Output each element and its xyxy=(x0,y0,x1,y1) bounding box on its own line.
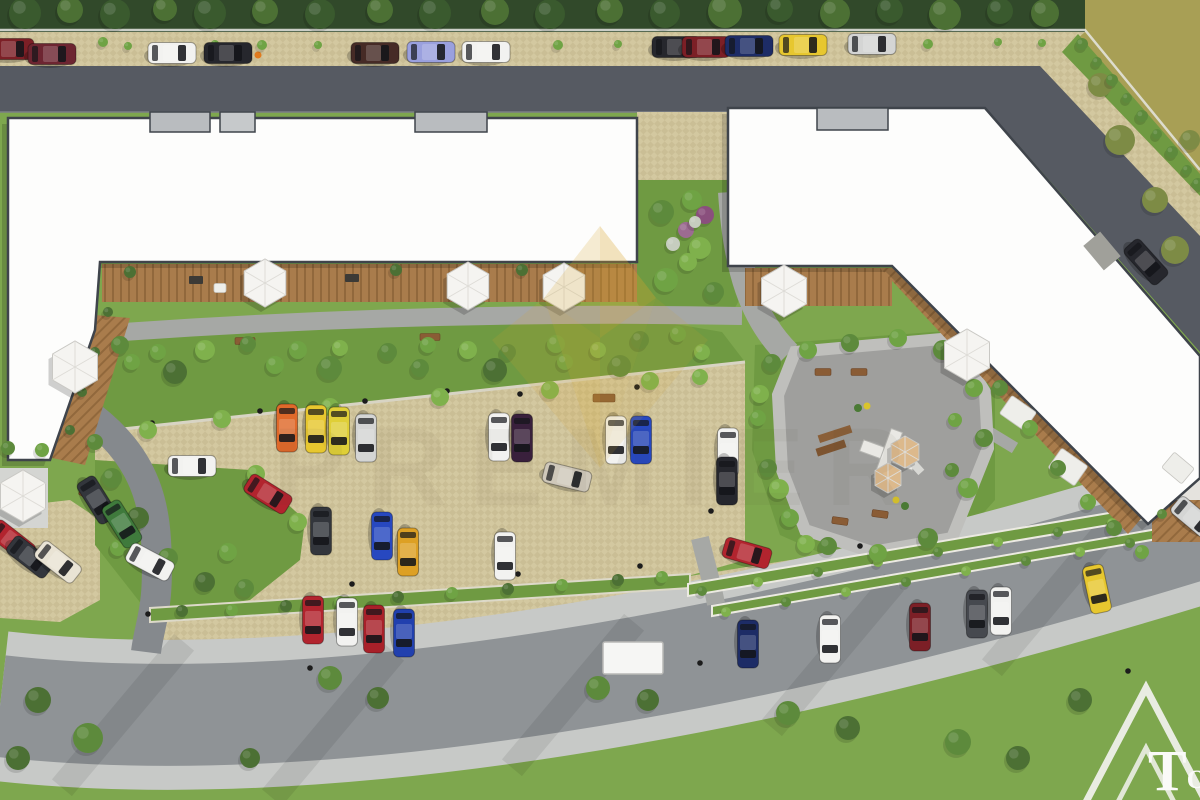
tree xyxy=(689,216,701,228)
tree-highlight xyxy=(994,382,1000,388)
deck-seating xyxy=(214,284,226,293)
tree xyxy=(813,567,823,577)
tree-highlight xyxy=(321,359,331,369)
tree xyxy=(1161,236,1189,264)
tree xyxy=(280,600,292,612)
tree-highlight xyxy=(243,751,251,759)
tree-highlight xyxy=(242,338,248,344)
tree-highlight xyxy=(779,704,789,714)
tree xyxy=(1,441,15,455)
deck-table xyxy=(189,276,203,284)
tree-highlight xyxy=(681,255,688,262)
tree-highlight xyxy=(668,239,674,245)
car xyxy=(775,35,827,60)
bench xyxy=(815,369,831,376)
tree xyxy=(65,425,75,435)
bollard xyxy=(1125,668,1131,674)
tree xyxy=(819,537,837,555)
tree-highlight xyxy=(990,1,1000,11)
tree-highlight xyxy=(994,538,998,542)
tree xyxy=(961,566,971,576)
tree xyxy=(420,337,436,353)
tree-highlight xyxy=(1054,528,1058,532)
tree-highlight xyxy=(215,412,222,419)
tree xyxy=(1182,165,1192,175)
tree-highlight xyxy=(518,266,523,271)
between-buildings-paver xyxy=(637,112,729,184)
tree-highlight xyxy=(125,43,128,46)
tree-highlight xyxy=(1078,40,1083,45)
tree xyxy=(124,266,136,278)
tree-highlight xyxy=(1108,522,1114,528)
tree xyxy=(98,37,108,47)
tree-highlight xyxy=(126,356,132,362)
tree xyxy=(1106,520,1122,536)
tree xyxy=(318,666,342,690)
tree xyxy=(87,434,103,450)
tree-highlight xyxy=(413,361,420,368)
tree-highlight xyxy=(1183,133,1191,141)
car xyxy=(906,599,931,651)
tree xyxy=(781,597,791,607)
tree xyxy=(1166,146,1178,158)
tree-highlight xyxy=(1071,691,1081,701)
tree xyxy=(1106,74,1118,86)
car xyxy=(491,528,516,580)
tree xyxy=(1180,130,1200,150)
tree-highlight xyxy=(99,38,103,42)
car xyxy=(987,583,1012,635)
tree-highlight xyxy=(995,39,998,42)
bollard xyxy=(257,408,263,414)
tree xyxy=(692,369,708,385)
tree-highlight xyxy=(1137,547,1143,553)
tree xyxy=(535,0,565,29)
tree xyxy=(1021,556,1031,566)
tree xyxy=(993,537,1003,547)
tree-highlight xyxy=(948,732,958,742)
tree-highlight xyxy=(658,573,663,578)
tree xyxy=(289,341,307,359)
car xyxy=(403,42,455,67)
tree-highlight xyxy=(653,203,663,213)
tree xyxy=(73,723,103,753)
tree xyxy=(763,354,781,372)
tree-highlight xyxy=(962,567,966,571)
bollard xyxy=(515,571,521,577)
tree-highlight xyxy=(1183,166,1187,170)
tree-highlight xyxy=(722,608,726,612)
tree xyxy=(176,605,188,617)
tree-highlight xyxy=(291,343,298,350)
tree-highlight xyxy=(698,587,702,591)
tree-highlight xyxy=(1145,190,1155,200)
tree-highlight xyxy=(821,539,828,546)
tree-highlight xyxy=(842,588,846,592)
tree-highlight xyxy=(315,42,318,45)
tree xyxy=(1075,547,1085,557)
tree xyxy=(923,39,933,49)
bollard xyxy=(349,581,355,587)
tree xyxy=(163,360,187,384)
tree xyxy=(666,237,680,251)
car xyxy=(333,594,358,646)
tree xyxy=(1125,538,1135,548)
tree xyxy=(1031,0,1059,27)
tree xyxy=(1022,420,1038,436)
tree-highlight xyxy=(1138,112,1143,117)
tree xyxy=(556,579,568,591)
tree-highlight xyxy=(321,669,331,679)
bollard xyxy=(362,398,368,404)
tree-highlight xyxy=(707,285,715,293)
tree xyxy=(1105,125,1135,155)
site-plan-render: PREMIER TOP xyxy=(0,0,1200,800)
tree-highlight xyxy=(934,548,938,552)
tree-highlight xyxy=(692,240,701,249)
tree xyxy=(992,380,1008,396)
tree xyxy=(1136,110,1148,122)
tree-highlight xyxy=(249,467,256,474)
tree xyxy=(102,468,122,488)
tree xyxy=(103,307,113,317)
tree xyxy=(1038,39,1046,47)
tree-highlight xyxy=(1108,76,1113,81)
tree xyxy=(35,443,49,457)
tree-highlight xyxy=(1123,94,1127,98)
tree-highlight xyxy=(615,41,618,44)
tree-highlight xyxy=(753,387,760,394)
tree-highlight xyxy=(1076,548,1080,552)
tree-highlight xyxy=(1022,557,1026,561)
bollard xyxy=(697,660,703,666)
car xyxy=(734,616,759,668)
tree xyxy=(367,687,389,709)
tree xyxy=(1122,93,1132,103)
tree-highlight xyxy=(558,581,563,586)
tree xyxy=(318,356,342,380)
tree-highlight xyxy=(1126,539,1130,543)
tree xyxy=(240,336,256,352)
tree-highlight xyxy=(13,1,26,14)
tree-highlight xyxy=(694,371,700,377)
tree xyxy=(586,676,610,700)
tree xyxy=(948,413,962,427)
tree-highlight xyxy=(238,581,245,588)
deck-table xyxy=(345,274,359,282)
tree xyxy=(1006,746,1030,770)
tree-highlight xyxy=(691,218,696,223)
tree-highlight xyxy=(60,0,70,10)
tree-highlight xyxy=(461,343,468,350)
tree-highlight xyxy=(924,40,928,44)
tree-highlight xyxy=(880,0,890,10)
tree xyxy=(240,748,260,768)
tree-highlight xyxy=(657,271,667,281)
car xyxy=(394,524,419,576)
tree-highlight xyxy=(485,1,496,12)
tree-highlight xyxy=(370,690,379,699)
tree xyxy=(305,0,335,29)
tree xyxy=(1050,460,1066,476)
tree xyxy=(721,607,731,617)
tree-highlight xyxy=(105,471,113,479)
tree xyxy=(411,359,429,377)
tree-highlight xyxy=(141,423,148,430)
tree xyxy=(124,354,140,370)
tree-highlight xyxy=(9,749,19,759)
tree-highlight xyxy=(1153,130,1157,134)
tree-highlight xyxy=(685,193,693,201)
car xyxy=(390,605,415,657)
tree-highlight xyxy=(1168,148,1173,153)
tree-highlight xyxy=(1035,3,1046,14)
tree-highlight xyxy=(113,338,120,345)
tree-highlight xyxy=(130,510,139,519)
tree xyxy=(1053,527,1063,537)
tree-highlight xyxy=(66,426,70,430)
tree-highlight xyxy=(258,41,262,45)
tree xyxy=(111,336,129,354)
tree xyxy=(266,356,284,374)
tree xyxy=(1142,187,1168,213)
tree-highlight xyxy=(504,585,509,590)
tree-highlight xyxy=(309,3,321,15)
tree xyxy=(1076,38,1088,50)
tree-highlight xyxy=(37,445,43,451)
scene-svg: PREMIER TOP xyxy=(0,0,1200,800)
tree xyxy=(751,385,769,403)
tree xyxy=(945,463,959,477)
tree xyxy=(682,190,702,210)
tree xyxy=(841,587,851,597)
tree-highlight xyxy=(950,415,956,421)
tree-highlight xyxy=(394,593,399,598)
tree-highlight xyxy=(871,546,878,553)
tree-highlight xyxy=(640,692,649,701)
car xyxy=(200,43,252,68)
car xyxy=(164,456,216,481)
tree xyxy=(431,388,449,406)
tree-highlight xyxy=(1093,58,1097,62)
tree xyxy=(1135,545,1149,559)
tree xyxy=(776,701,800,725)
tree-highlight xyxy=(77,727,89,739)
tree-highlight xyxy=(961,481,969,489)
tree xyxy=(918,528,938,548)
tree-highlight xyxy=(433,390,440,397)
tree xyxy=(612,574,624,586)
tree-highlight xyxy=(178,607,183,612)
tree xyxy=(1092,57,1102,67)
tree xyxy=(614,40,622,48)
tree-highlight xyxy=(843,336,850,343)
right-building-notch xyxy=(817,108,888,130)
tree xyxy=(1068,688,1092,712)
tree-highlight xyxy=(486,361,496,371)
tree-highlight xyxy=(554,41,558,45)
tree xyxy=(195,340,215,360)
tree-highlight xyxy=(539,3,551,15)
tree xyxy=(213,410,231,428)
tree xyxy=(753,577,763,587)
tree-highlight xyxy=(282,602,287,607)
car xyxy=(844,34,896,59)
bollard xyxy=(517,391,523,397)
tree-highlight xyxy=(801,343,808,350)
tree-highlight xyxy=(198,343,206,351)
tree-highlight xyxy=(600,0,610,10)
tree xyxy=(459,341,477,359)
left-building-notch-1 xyxy=(150,112,210,132)
tree-highlight xyxy=(1194,180,1199,185)
tree-highlight xyxy=(1052,462,1058,468)
tree xyxy=(25,687,51,713)
tree xyxy=(637,689,659,711)
tree xyxy=(390,264,402,276)
tree-highlight xyxy=(152,346,158,352)
tree-highlight xyxy=(933,2,946,15)
car xyxy=(144,43,196,68)
tree-highlight xyxy=(334,342,340,348)
tree-highlight xyxy=(1165,240,1176,251)
tree-highlight xyxy=(921,531,929,539)
car xyxy=(963,586,988,638)
tree-highlight xyxy=(228,606,233,611)
tree-highlight xyxy=(370,0,380,10)
tree xyxy=(799,341,817,359)
tree-highlight xyxy=(589,679,599,689)
tree xyxy=(379,343,397,361)
bollard xyxy=(637,563,643,569)
tree xyxy=(654,268,678,292)
left-building-notch-2 xyxy=(220,112,255,132)
tree xyxy=(656,571,668,583)
tree-highlight xyxy=(89,436,95,442)
tree-highlight xyxy=(28,690,38,700)
tree-highlight xyxy=(422,339,428,345)
tree xyxy=(1080,494,1096,510)
tree xyxy=(836,716,860,740)
car xyxy=(360,601,385,653)
tree-highlight xyxy=(166,363,176,373)
tree-highlight xyxy=(126,268,131,273)
tree xyxy=(1152,129,1162,139)
tree xyxy=(314,41,322,49)
tree-highlight xyxy=(1009,749,1019,759)
tree-highlight xyxy=(1024,422,1030,428)
tree-highlight xyxy=(1109,129,1121,141)
tree xyxy=(945,729,971,755)
bollard xyxy=(145,611,151,617)
left-building-notch-3 xyxy=(415,112,487,132)
canopy-kiosk xyxy=(603,642,663,674)
tree-highlight xyxy=(814,568,818,572)
tree xyxy=(975,429,993,447)
bench xyxy=(851,369,867,376)
tree-highlight xyxy=(1039,40,1042,43)
tree xyxy=(933,547,943,557)
tree xyxy=(6,746,30,770)
tree-highlight xyxy=(782,598,786,602)
tree xyxy=(994,38,1002,46)
tree-highlight xyxy=(977,431,984,438)
tree xyxy=(257,40,267,50)
tree-highlight xyxy=(268,358,275,365)
tree-highlight xyxy=(698,208,705,215)
tree xyxy=(650,200,674,224)
tree xyxy=(392,591,404,603)
tree-highlight xyxy=(1091,76,1101,86)
car xyxy=(458,42,510,67)
tree xyxy=(100,0,130,29)
tree xyxy=(679,253,697,271)
tree xyxy=(901,577,911,587)
tree xyxy=(889,329,907,347)
tree-highlight xyxy=(198,575,206,583)
tree xyxy=(797,535,815,553)
tree xyxy=(1157,509,1167,519)
tree xyxy=(332,340,348,356)
car xyxy=(299,592,324,644)
tree-highlight xyxy=(824,2,836,14)
tree-highlight xyxy=(112,542,118,548)
tree-highlight xyxy=(654,2,666,14)
car xyxy=(24,44,76,69)
tree-highlight xyxy=(902,578,906,582)
tree-highlight xyxy=(839,719,849,729)
tree-highlight xyxy=(891,331,898,338)
tree-highlight xyxy=(156,0,166,10)
tree-highlight xyxy=(765,356,772,363)
tree xyxy=(219,543,237,561)
tree xyxy=(958,478,978,498)
bollard xyxy=(857,543,863,549)
tree-highlight xyxy=(198,1,211,14)
tree-highlight xyxy=(799,537,806,544)
tree-highlight xyxy=(392,266,397,271)
car xyxy=(347,43,399,68)
tree-highlight xyxy=(381,345,388,352)
tree xyxy=(226,604,238,616)
tree xyxy=(502,583,514,595)
tree-highlight xyxy=(754,578,758,582)
tree-highlight xyxy=(448,589,453,594)
tree xyxy=(553,40,563,50)
tree xyxy=(869,544,887,562)
tree xyxy=(446,587,458,599)
tree xyxy=(124,42,132,50)
tree-highlight xyxy=(104,308,108,312)
tree xyxy=(704,282,724,302)
tree-highlight xyxy=(104,3,116,15)
tree xyxy=(195,572,215,592)
watermark-brand-text: PREMIER xyxy=(272,406,927,529)
tree-highlight xyxy=(221,545,228,552)
tree-highlight xyxy=(3,443,9,449)
car xyxy=(816,611,841,663)
tree xyxy=(841,334,859,352)
tree xyxy=(697,586,707,596)
tree-highlight xyxy=(1082,496,1088,502)
car xyxy=(721,36,773,61)
tree-highlight xyxy=(614,576,619,581)
bollard xyxy=(307,665,313,671)
tree-highlight xyxy=(947,465,953,471)
tree xyxy=(139,421,157,439)
tree xyxy=(150,344,166,360)
tree-highlight xyxy=(255,1,265,11)
